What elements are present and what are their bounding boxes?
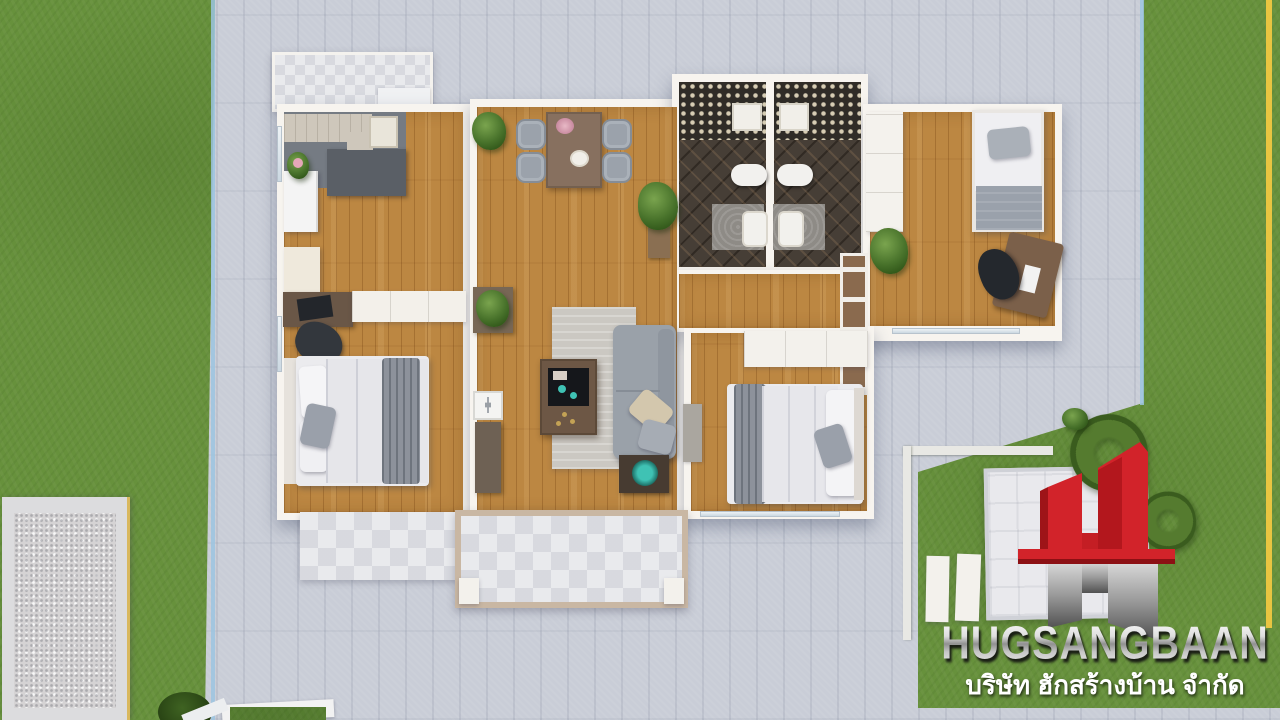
porch-post-left: [459, 578, 479, 604]
console-knob-3: [556, 421, 561, 426]
bath-sink-2: [778, 211, 804, 247]
kitchen-cabinet: [284, 247, 320, 292]
toilet-2: [777, 164, 813, 186]
console-knob-1: [562, 412, 567, 417]
window-kitchen-left: [277, 126, 282, 182]
boundary-line-left: [211, 0, 215, 720]
bedroom2-pillow: [987, 126, 1032, 160]
dining-plate: [570, 150, 589, 167]
company-name: HUGSANGBAAN: [918, 620, 1280, 669]
front-porch: [455, 510, 688, 608]
bedroom3-cabinet: [683, 404, 702, 462]
tv-screen-image: [553, 371, 567, 380]
dining-chair-3: [602, 119, 632, 150]
render-stage: HUGSANGBAAN บริษัท ฮักสร้างบ้าน จำกัด: [0, 0, 1280, 720]
shower-tray-1: [732, 103, 762, 131]
bedroom2-plant: [870, 228, 908, 274]
wreath-large-sprig: [1062, 408, 1088, 430]
bath-sink-1: [742, 211, 768, 247]
porch-post-right: [664, 578, 684, 604]
window-bedroom2-bottom: [892, 328, 1020, 334]
bedroom2-wardrobe: [866, 112, 903, 232]
hallway-floor: [679, 274, 867, 328]
sofa-seat-line: [616, 390, 660, 392]
hallway-shelf: [840, 253, 868, 395]
paved-bar-1: [925, 556, 949, 622]
dining-chair-4: [602, 152, 632, 183]
gravel-patio: [14, 513, 116, 708]
console-knob-2: [570, 419, 575, 424]
bottom-planter-grass: [230, 707, 326, 720]
bedroom3-wardrobe: [744, 331, 868, 367]
dining-chair-2: [516, 152, 546, 183]
gravel-patio-edge: [127, 497, 130, 720]
window-bedroom3-bottom: [700, 511, 840, 517]
bedroom1-blanket: [382, 358, 420, 484]
tv-teal-dot-2: [570, 392, 577, 399]
terrace-left: [300, 512, 457, 580]
bedroom1-laptop: [297, 295, 334, 322]
tv-teal-dot-1: [558, 385, 566, 393]
dining-plant-fronds: [638, 182, 678, 230]
boundary-line-yellow: [1266, 0, 1272, 628]
boundary-line-right: [1140, 0, 1144, 405]
kitchen-sink: [369, 116, 398, 148]
toilet-1: [731, 164, 767, 186]
refrigerator: [284, 171, 318, 232]
bedroom2-blanket: [976, 186, 1042, 230]
bedroom3-headboard: [854, 388, 864, 500]
dining-flowers: [556, 118, 574, 134]
garden-path-vertical: [903, 446, 911, 640]
dining-chair-1: [516, 119, 546, 150]
shower-tray-2: [779, 103, 809, 131]
console-plant: [476, 290, 509, 327]
side-table-bowl: [632, 460, 658, 486]
bedroom1-closet: [352, 291, 466, 322]
paved-bar-2: [955, 554, 981, 622]
dining-table: [546, 112, 602, 188]
kitchen-flowers-pink: [293, 158, 303, 168]
dining-plant-corner: [472, 112, 506, 150]
concrete-strip-bottom-right: [918, 708, 1280, 720]
shoe-cabinet: [475, 422, 501, 493]
logo-h-icon: [1010, 435, 1185, 645]
window-bedroom1-left: [277, 316, 282, 372]
kitchen-island: [327, 149, 406, 196]
company-name-thai: บริษัท ฮักสร้างบ้าน จำกัด: [925, 668, 1280, 702]
